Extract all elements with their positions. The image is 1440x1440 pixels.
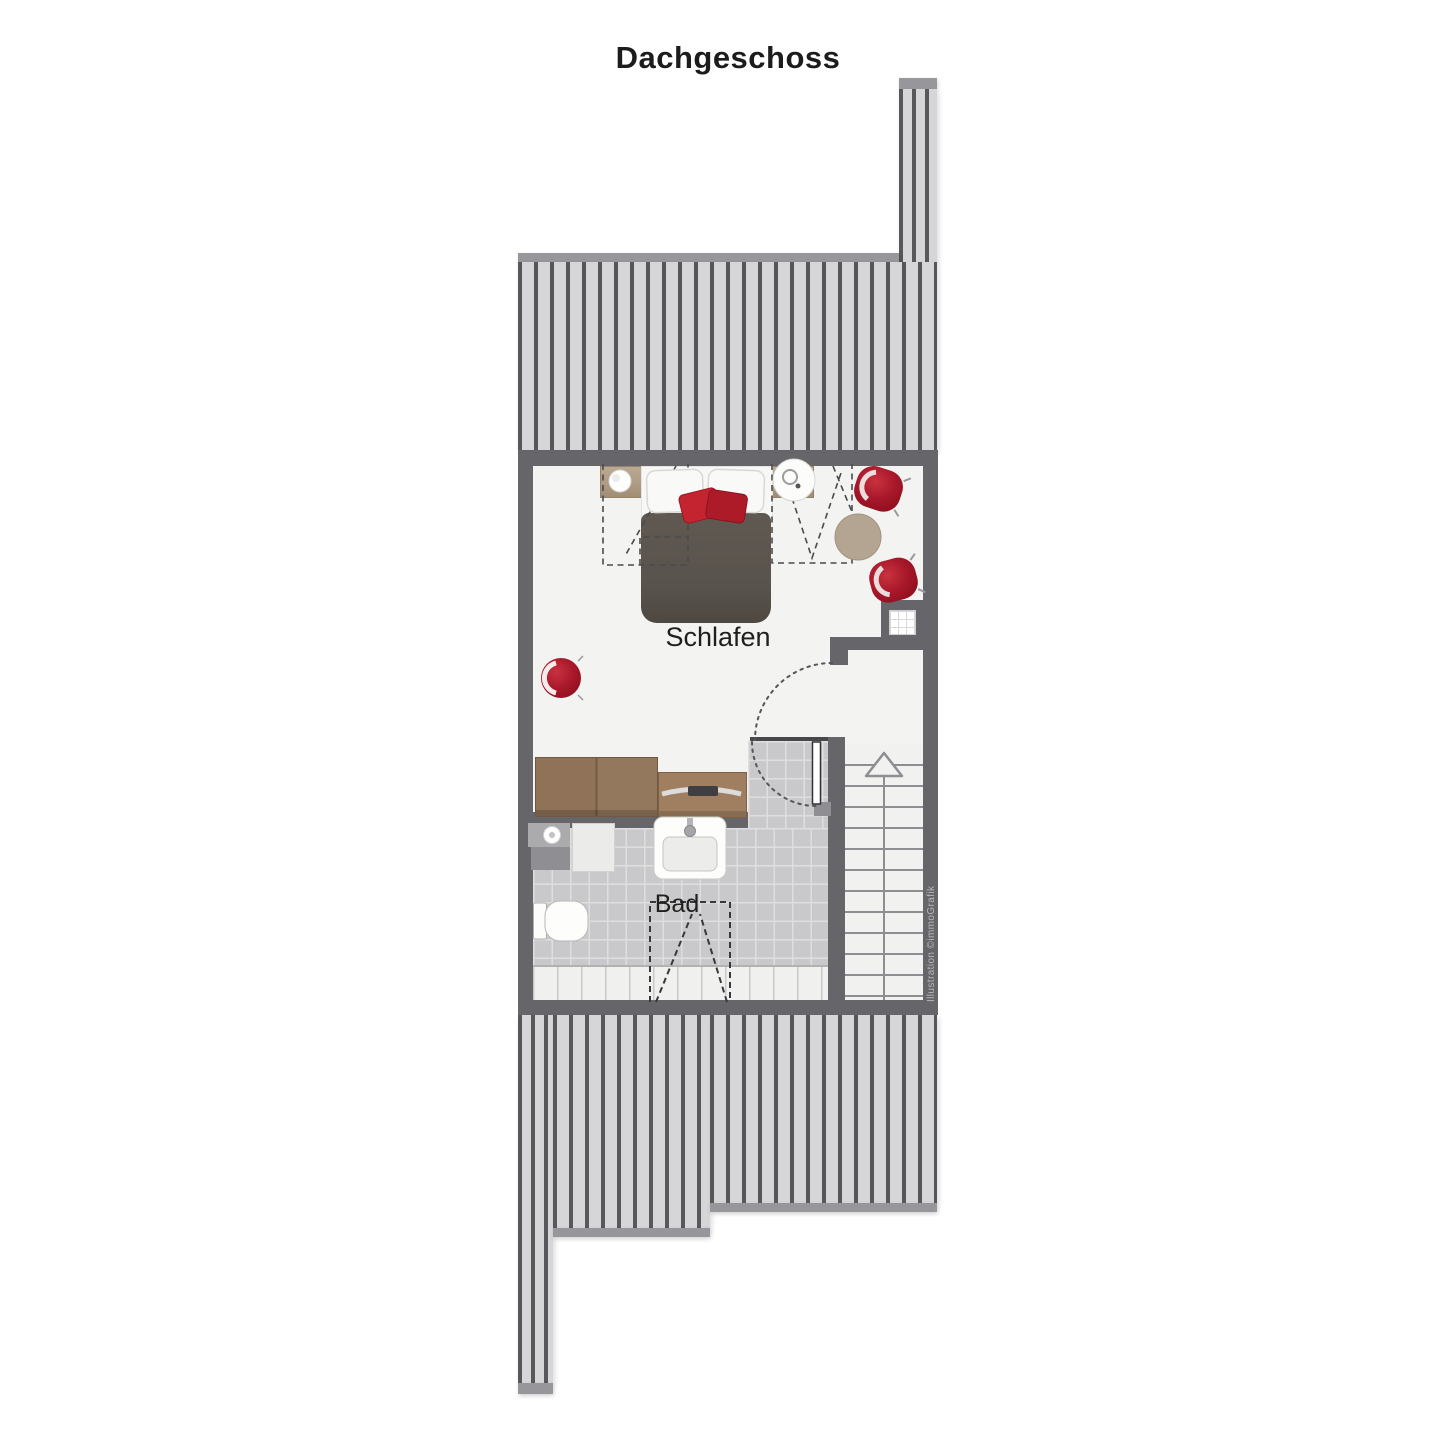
bed-pillows <box>646 469 764 524</box>
floorplan-canvas: Dachgeschoss <box>0 0 1440 1440</box>
illustration-credit: Illustration ©immoGrafik <box>926 886 937 1002</box>
red-armchair-top <box>850 462 911 518</box>
round-rug <box>835 514 881 560</box>
room-label-bathroom: Bad <box>649 890 705 919</box>
bedroom-door-swing <box>755 663 832 740</box>
fixtures-overlay <box>0 0 1440 1440</box>
toilet-icon <box>534 901 589 941</box>
bathroom-door-leaf <box>813 742 821 804</box>
room-label-bedroom: Schlafen <box>648 622 788 653</box>
washbasin-icon <box>544 827 561 844</box>
sink-icon <box>654 817 726 879</box>
bedside-lamp-icon <box>609 470 631 492</box>
red-pouf <box>541 656 583 700</box>
dresser-handle <box>662 786 741 796</box>
staircase-up-arrow <box>866 753 902 1000</box>
round-side-table-icon <box>773 459 815 501</box>
red-armchair-bottom <box>865 553 925 607</box>
bathroom-door-swing <box>752 742 816 806</box>
